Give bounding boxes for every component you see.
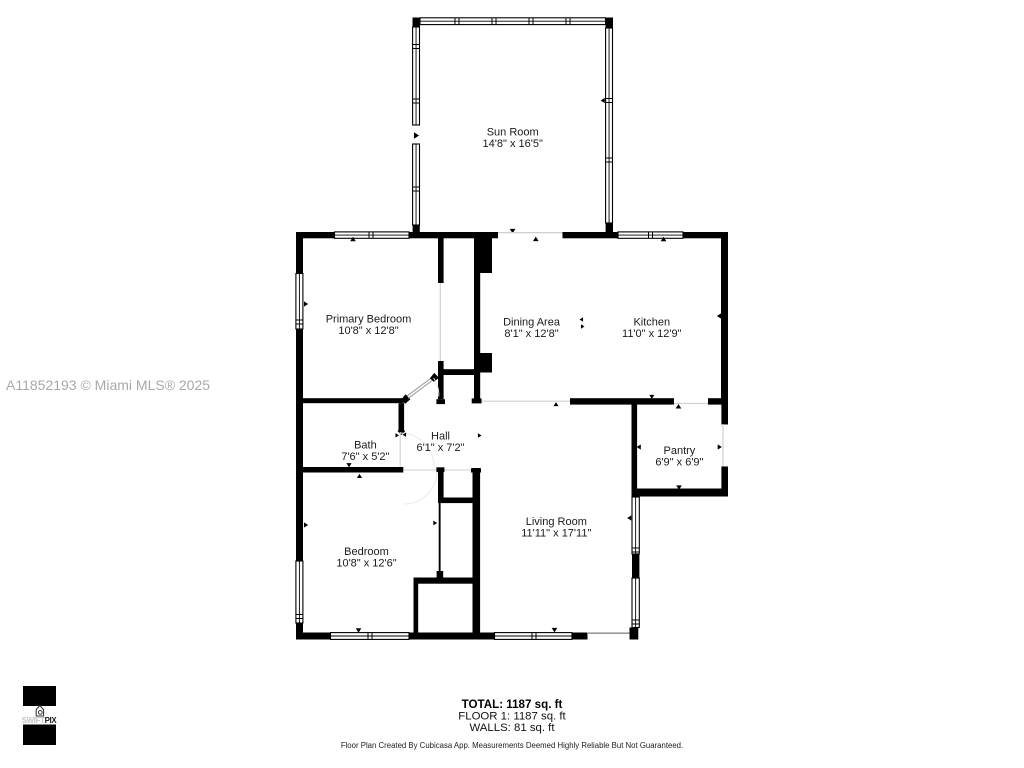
svg-text:Pantry: Pantry (664, 445, 696, 457)
svg-text:Hall: Hall (431, 431, 450, 443)
svg-text:8'1" x 12'8": 8'1" x 12'8" (504, 328, 558, 340)
svg-text:FLOOR 1: 1187 sq. ft: FLOOR 1: 1187 sq. ft (458, 711, 566, 723)
svg-text:14'8" x 16'5": 14'8" x 16'5" (483, 138, 543, 150)
svg-text:10'8" x 12'6": 10'8" x 12'6" (336, 558, 396, 570)
svg-text:Sun Room: Sun Room (487, 127, 539, 139)
svg-text:10'8" x 12'8": 10'8" x 12'8" (338, 325, 398, 337)
svg-text:Dining Area: Dining Area (503, 316, 561, 328)
svg-text:WALLS: 81 sq. ft: WALLS: 81 sq. ft (469, 722, 555, 734)
svg-text:Bath: Bath (354, 440, 377, 452)
svg-text:Floor Plan Created By Cubicasa: Floor Plan Created By Cubicasa App. Meas… (341, 741, 683, 750)
svg-text:Primary Bedroom: Primary Bedroom (326, 314, 412, 326)
svg-text:Bedroom: Bedroom (344, 546, 389, 558)
svg-text:6'9" x 6'9": 6'9" x 6'9" (655, 456, 703, 468)
svg-text:A11852193 © Miami MLS® 2025: A11852193 © Miami MLS® 2025 (6, 377, 210, 393)
svg-text:6'1" x 7'2": 6'1" x 7'2" (416, 442, 464, 454)
svg-text:11'11" x 17'11": 11'11" x 17'11" (521, 528, 591, 540)
svg-text:7'6" x 5'2": 7'6" x 5'2" (341, 451, 389, 463)
svg-text:Kitchen: Kitchen (633, 316, 670, 328)
svg-text:11'0" x 12'9": 11'0" x 12'9" (622, 328, 682, 340)
svg-text:SWIFTPIX: SWIFTPIX (22, 716, 58, 725)
svg-text:TOTAL: 1187 sq. ft: TOTAL: 1187 sq. ft (462, 698, 563, 711)
svg-text:Living Room: Living Room (526, 516, 587, 528)
